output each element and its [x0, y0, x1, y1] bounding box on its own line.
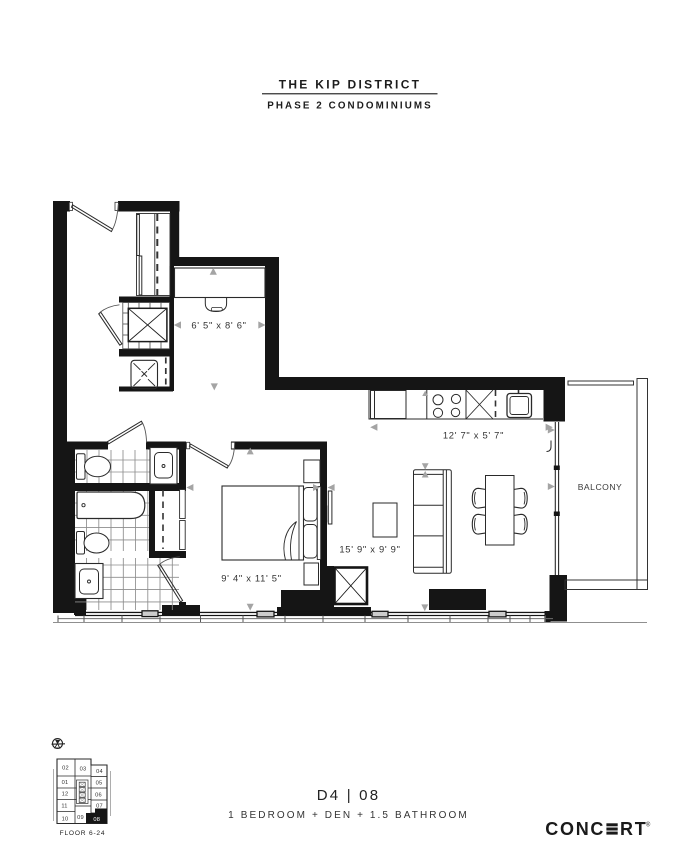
svg-text:12' 7" x 5' 7": 12' 7" x 5' 7": [443, 430, 504, 441]
svg-text:15' 9" x 9' 9": 15' 9" x 9' 9": [339, 544, 400, 555]
svg-text:BALCONY: BALCONY: [578, 482, 623, 492]
svg-text:10: 10: [62, 817, 69, 823]
svg-text:RT: RT: [620, 819, 647, 839]
svg-text:CONC: CONC: [545, 819, 605, 839]
svg-text:05: 05: [96, 781, 103, 787]
svg-text:02: 02: [62, 766, 69, 772]
svg-text:9' 4" x 11' 5": 9' 4" x 11' 5": [221, 573, 282, 584]
svg-text:03: 03: [80, 767, 87, 773]
svg-text:11: 11: [61, 804, 67, 810]
svg-text:®: ®: [646, 822, 651, 829]
svg-text:PHASE 2 CONDOMINIUMS: PHASE 2 CONDOMINIUMS: [267, 101, 433, 112]
svg-text:1 BEDROOM + DEN + 1.5 BATHROOM: 1 BEDROOM + DEN + 1.5 BATHROOM: [228, 810, 469, 821]
svg-text:07: 07: [96, 804, 103, 810]
svg-text:01: 01: [62, 780, 69, 786]
svg-text:04: 04: [96, 769, 103, 775]
svg-text:12: 12: [62, 792, 69, 798]
svg-text:D4 | 08: D4 | 08: [317, 787, 381, 804]
svg-text:THE KIP DISTRICT: THE KIP DISTRICT: [279, 77, 422, 91]
svg-text:06: 06: [95, 793, 102, 799]
svg-text:6' 5" x 8' 6": 6' 5" x 8' 6": [191, 320, 246, 331]
svg-text:08: 08: [93, 817, 100, 823]
svg-text:09: 09: [77, 815, 84, 821]
svg-text:FLOOR 6-24: FLOOR 6-24: [60, 830, 106, 837]
